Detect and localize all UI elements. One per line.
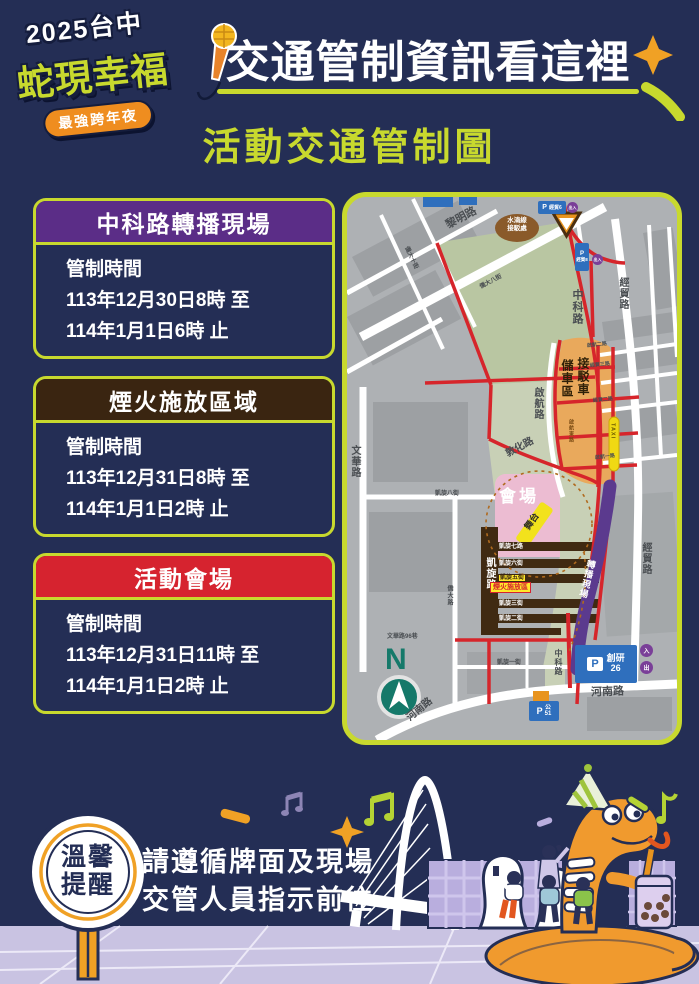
traffic-control-map: 黎明路 中科路 經貿路 經貿路 敦化路 啟航路 文華路 凱旋路 河南路 河南路 …	[342, 192, 682, 745]
card-time-from: 113年12月31日8時 至	[66, 463, 332, 494]
card-time-from: 113年12月30日8時 至	[66, 285, 332, 316]
card-time-to: 114年1月1日2時 止	[66, 494, 332, 525]
map-label-wenhua-lane: 文華路96巷	[387, 634, 418, 640]
map-label-jingmao2: 經貿二路	[593, 397, 613, 404]
map-label-kaixuan1: 凱旋一街	[497, 660, 521, 666]
card-time-to: 114年1月1日6時 止	[66, 316, 332, 347]
map-label-shuttle-line1: 接駁車	[577, 357, 589, 396]
card-zhongke-broadcast: 中科路轉播現場 管制時間 113年12月30日8時 至 114年1月1日6時 止	[33, 198, 335, 359]
swoosh-icon	[646, 87, 680, 117]
inout-badge: 出入	[567, 202, 578, 213]
section-title: 活動交通管制圖	[0, 116, 699, 171]
map-label-qihang-rd: 啟航路	[532, 387, 542, 420]
map-label-qiaoda8: 僑大八街	[479, 274, 503, 291]
map-label-qiaoda-rd: 僑大路	[446, 585, 452, 606]
map-label-north: N	[385, 645, 407, 675]
card-fireworks-zone: 煙火施放區域 管制時間 113年12月31日8時 至 114年1月1日2時 止	[33, 376, 335, 537]
map-label-qiaoda10: 僑大十街	[403, 246, 419, 270]
confetti	[220, 808, 251, 824]
card-title: 中科路轉播現場	[36, 201, 332, 245]
parking-sign-jingmao6: P 經貿6	[538, 201, 566, 214]
map-labels: 黎明路 中科路 經貿路 經貿路 敦化路 啟航路 文華路 凱旋路 河南路 河南路 …	[347, 197, 677, 740]
page-title: 交通管制資訊看這裡	[212, 26, 644, 90]
map-label-zhongke-lower: 中科路	[554, 649, 562, 676]
reminder-sign-text: 溫馨 提醒	[50, 844, 126, 899]
map-label-kaixuan3: 凱旋三街	[499, 601, 523, 607]
music-note-icon	[664, 794, 676, 820]
card-time-from: 113年12月31日11時 至	[66, 640, 332, 671]
card-label: 管制時間	[66, 254, 332, 285]
map-label-shuttle-line2: 儲車區	[561, 359, 573, 398]
map-label-zhongke-rd: 中科路	[571, 289, 582, 325]
map-label-kaixuan6: 凱旋六街	[499, 561, 523, 567]
card-title: 煙火施放區域	[36, 379, 332, 423]
confetti	[536, 817, 553, 828]
card-label: 管制時間	[66, 432, 332, 463]
map-label-jingmao-rd: 經貿路	[617, 277, 627, 310]
title-underline	[217, 89, 639, 94]
map-label-taxi: TAXI	[609, 423, 615, 439]
poster: 2025台中 蛇現幸福 最強跨年夜 交通管制資訊看這裡 活動交通管制圖 中科路轉…	[0, 0, 699, 984]
card-title: 活動會場	[36, 556, 332, 600]
sparkle-icon	[633, 35, 673, 75]
map-label-liming-rd: 黎明路	[444, 206, 478, 231]
map-label-qihang2: 啟航二路	[587, 342, 607, 349]
map-label-broadcast: 轉播現場	[577, 559, 595, 600]
card-time-to: 114年1月1日2時 止	[66, 671, 332, 702]
map-label-qihang-east: 啟航東路	[568, 419, 573, 443]
card-label: 管制時間	[66, 609, 332, 640]
reminder-line2: 交管人員指示前往	[142, 878, 374, 917]
map-label-henan-rd-left: 河南路	[405, 697, 434, 724]
map-label-kaixuan8: 凱旋八街	[435, 491, 459, 497]
card-event-venue: 活動會場 管制時間 113年12月31日11時 至 114年1月1日2時 止	[33, 553, 335, 714]
parking-icon: P	[537, 706, 543, 716]
reminder-section: 溫馨 提醒 請遵循牌面及現場 交管人員指示前往	[0, 760, 699, 984]
map-label-fireworks-zone: 煙火施放區	[490, 582, 531, 593]
parking-sign-gong51: P 公 51	[529, 701, 559, 721]
reminder-line1: 請遵循牌面及現場	[142, 840, 374, 879]
map-label-wenhua-rd: 文華路	[349, 445, 359, 478]
entrance-badge: 入	[640, 644, 653, 657]
map-label-kaixuan7: 凱旋七路	[499, 544, 523, 550]
map-label-henan-rd: 河南路	[591, 686, 624, 698]
parking-sign-chuangyan: P 創研 26	[575, 645, 637, 683]
map-label-dunhua-rd: 敦化路	[504, 437, 535, 460]
parking-icon: P	[587, 657, 602, 671]
map-label-jingmao-rd-lower: 經貿路	[640, 542, 650, 575]
inout-badge: 出入	[592, 254, 603, 265]
parking-sign-jingmao8: P 經貿8	[575, 243, 589, 271]
map-label-kaixuan5: 凱旋五街	[499, 575, 525, 581]
map-label-shuttle-stop: 水湳線 接駁處	[495, 217, 539, 234]
parking-icon: P	[542, 204, 547, 211]
sparkle-swoosh-decoration	[628, 33, 698, 121]
map-label-jingmao3: 經貿三路	[590, 362, 610, 369]
map-label-qihang1: 啟航一路	[595, 454, 615, 461]
map-label-kaixuan2: 凱旋二街	[499, 616, 523, 622]
exit-badge: 出	[640, 661, 653, 674]
map-label-stage: 舞台	[523, 512, 541, 532]
map-label-venue: 會場	[499, 488, 539, 505]
parking-tab	[533, 691, 549, 701]
